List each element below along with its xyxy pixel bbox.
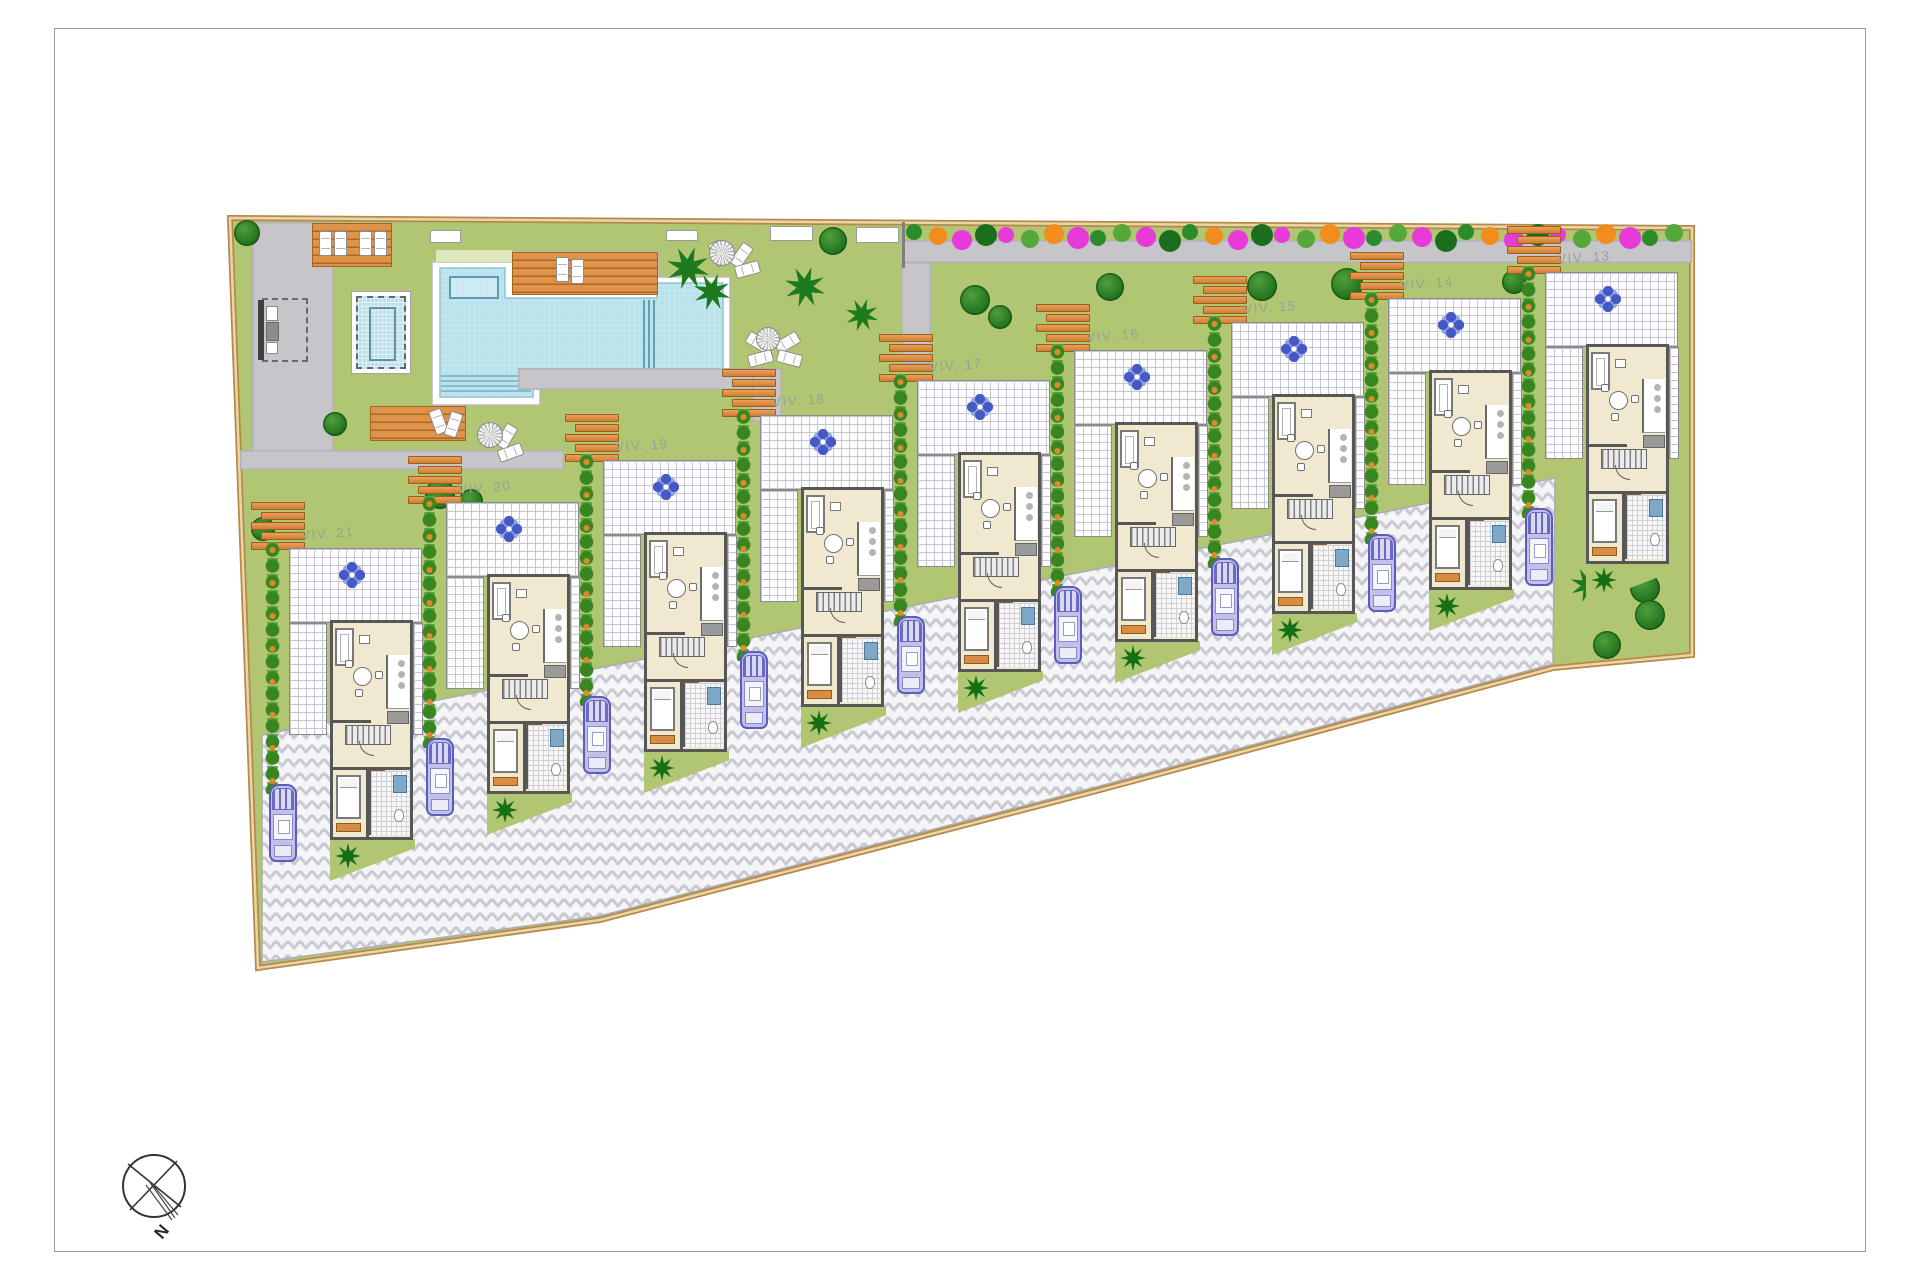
site-plan-page: VIV. 13 xyxy=(0,0,1920,1280)
compass-rose: N xyxy=(0,0,1920,1280)
compass-north-label: N xyxy=(151,1221,173,1243)
